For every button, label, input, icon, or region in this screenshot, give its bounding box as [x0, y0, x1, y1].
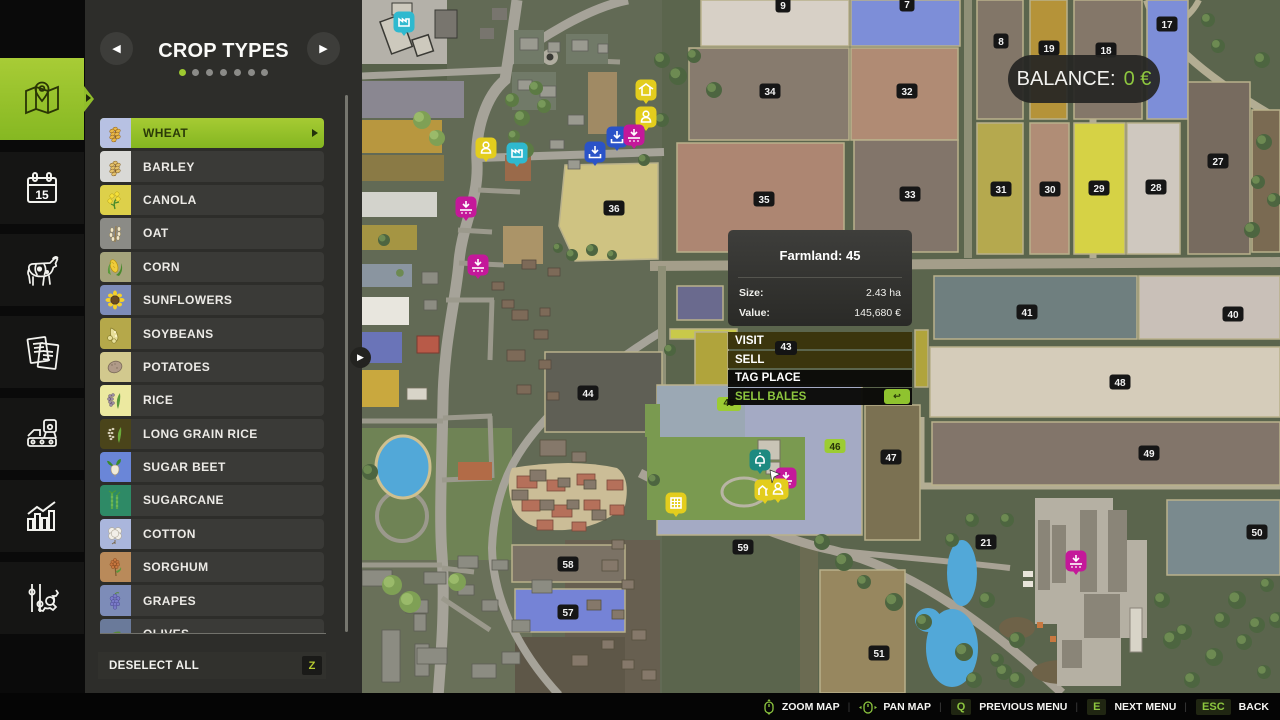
svg-text:46: 46: [829, 442, 841, 453]
svg-text:35: 35: [758, 195, 770, 206]
svg-text:47: 47: [885, 453, 897, 464]
svg-text:29: 29: [1093, 184, 1105, 195]
svg-text:49: 49: [1143, 449, 1155, 460]
svg-text:27: 27: [1212, 157, 1224, 168]
svg-text:51: 51: [873, 649, 885, 660]
svg-text:17: 17: [1161, 20, 1173, 31]
svg-text:40: 40: [1227, 310, 1239, 321]
svg-text:33: 33: [904, 190, 916, 201]
svg-text:34: 34: [764, 87, 776, 98]
svg-text:8: 8: [998, 37, 1004, 48]
svg-text:50: 50: [1251, 528, 1263, 539]
svg-text:32: 32: [901, 87, 913, 98]
svg-text:48: 48: [1114, 378, 1126, 389]
svg-text:28: 28: [1150, 183, 1162, 194]
svg-text:7: 7: [904, 0, 910, 11]
svg-text:15: 15: [35, 188, 49, 202]
svg-text:59: 59: [737, 543, 749, 554]
svg-text:19: 19: [1043, 44, 1055, 55]
svg-text:31: 31: [995, 185, 1007, 196]
svg-text:9: 9: [780, 1, 786, 12]
svg-text:57: 57: [562, 608, 574, 619]
svg-text:30: 30: [1044, 185, 1056, 196]
svg-text:21: 21: [980, 538, 992, 549]
svg-text:44: 44: [582, 389, 594, 400]
svg-text:41: 41: [1021, 308, 1033, 319]
svg-text:36: 36: [608, 204, 620, 215]
svg-text:58: 58: [562, 560, 574, 571]
